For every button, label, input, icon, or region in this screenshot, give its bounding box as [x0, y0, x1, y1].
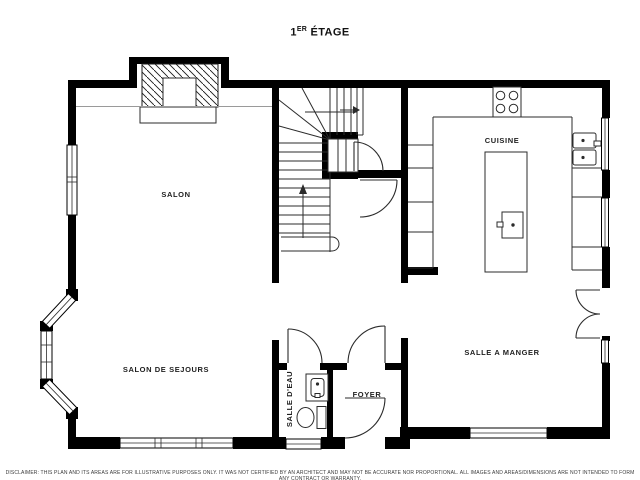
room-label-salon: SALON — [161, 190, 190, 199]
room-label-salle-a-manger: SALLE A MANGER — [464, 348, 539, 357]
entry-door — [345, 398, 385, 438]
foyer-door — [348, 326, 385, 363]
toilet — [297, 407, 326, 429]
sejours-bottom-window — [120, 438, 233, 448]
firebox — [163, 78, 196, 107]
floor-plan-page: 1ER ÉTAGE — [0, 0, 640, 480]
double-sink — [573, 133, 601, 165]
hearth — [140, 107, 216, 123]
salle-deau-door — [288, 329, 322, 363]
french-doors — [576, 290, 600, 338]
floor-plan-canvas: SALON SALON DE SEJOURS SALLE D'EAU FOYER… — [0, 0, 640, 480]
doors — [288, 142, 600, 438]
kitchen-right-window-2 — [602, 198, 609, 247]
bay-window — [41, 294, 77, 415]
vanity-sink — [306, 374, 328, 401]
kitchen-right-window-1 — [602, 118, 609, 170]
stair-up-arrow — [299, 184, 307, 238]
bathroom-fixtures — [297, 374, 328, 429]
salon-left-window — [67, 145, 77, 215]
dining-right-window — [602, 340, 609, 363]
salle-deau-window — [286, 439, 321, 449]
dining-bottom-window — [470, 428, 547, 438]
room-label-foyer: FOYER — [353, 390, 382, 399]
hall-lower-door — [360, 180, 397, 217]
room-label-cuisine: CUISINE — [485, 136, 520, 145]
disclaimer-text: DISCLAIMER: THIS PLAN AND ITS AREAS ARE … — [0, 470, 640, 480]
room-label-salon-de-sejours: SALON DE SEJOURS — [123, 365, 209, 374]
stove — [493, 87, 521, 117]
fireplace — [140, 64, 218, 123]
kitchen-island — [485, 152, 527, 272]
room-label-salle-deau: SALLE D'EAU — [285, 371, 294, 427]
